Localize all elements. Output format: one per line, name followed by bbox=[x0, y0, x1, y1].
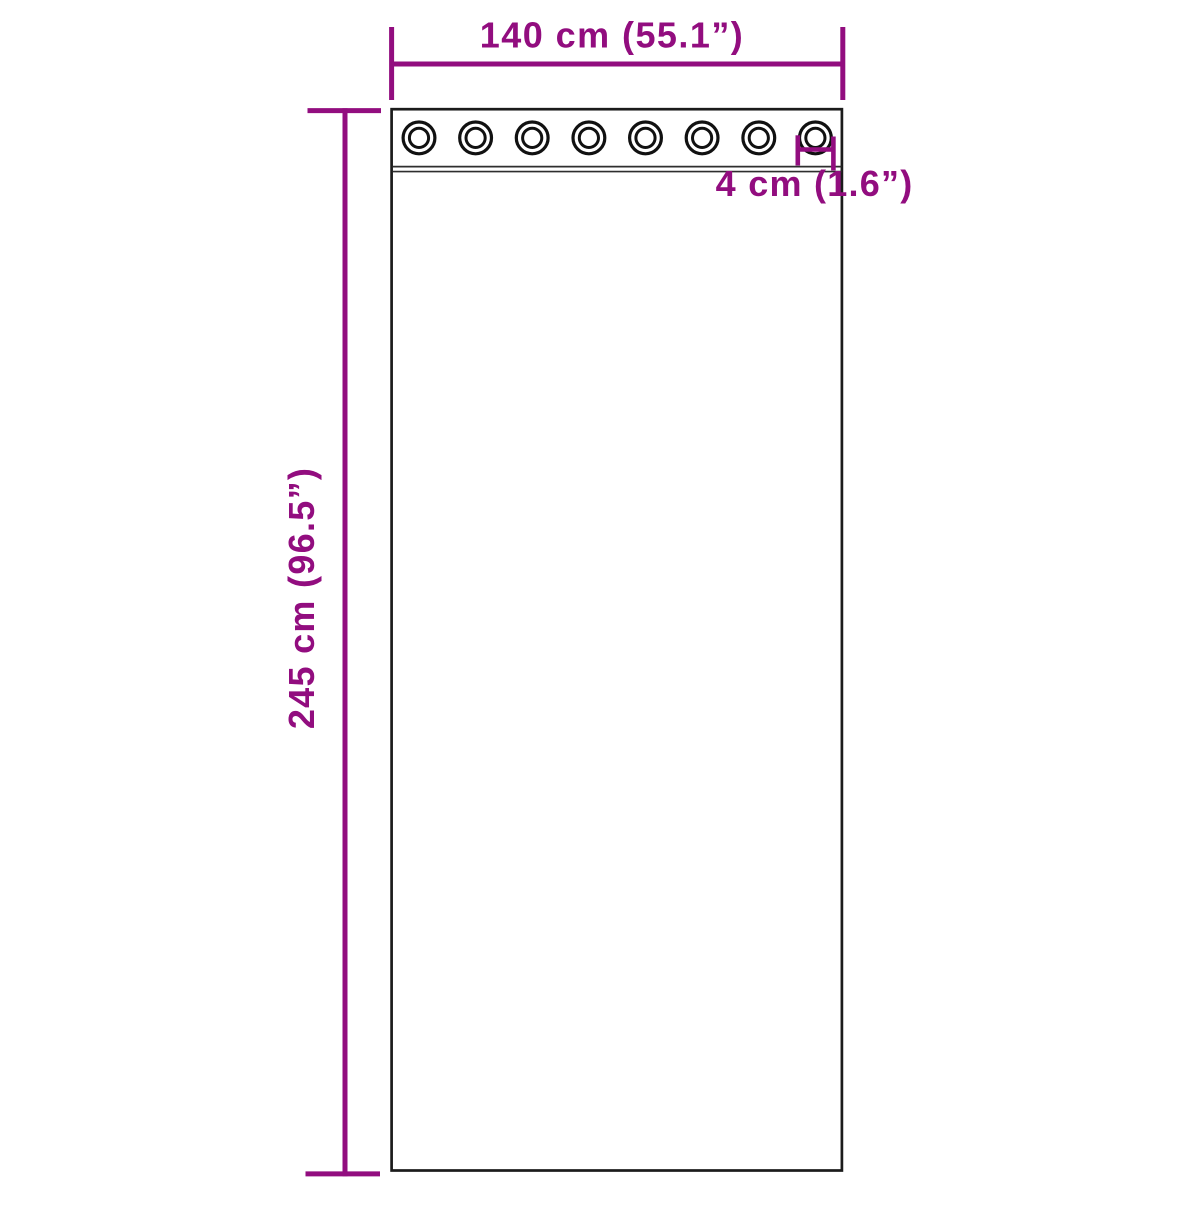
svg-text:4 cm (1.6”): 4 cm (1.6”) bbox=[716, 163, 914, 204]
svg-text:245 cm (96.5”): 245 cm (96.5”) bbox=[281, 467, 322, 729]
svg-text:140 cm (55.1”): 140 cm (55.1”) bbox=[480, 15, 744, 56]
